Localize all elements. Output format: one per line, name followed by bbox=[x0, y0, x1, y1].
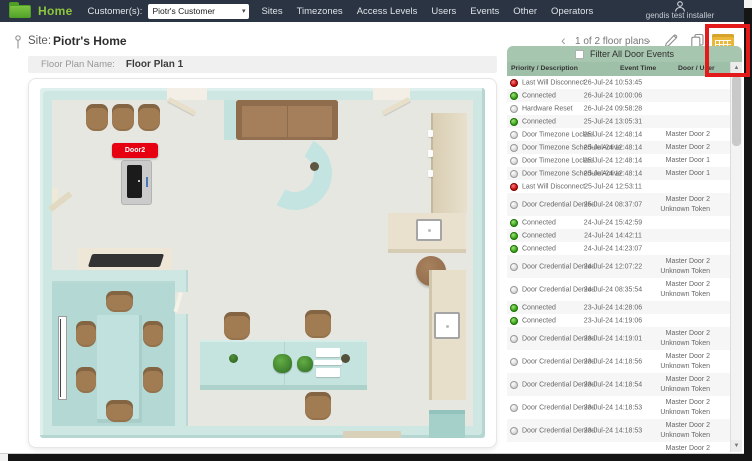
event-description: Connected bbox=[522, 92, 556, 99]
event-door-user: Master Door 2Unknown Token bbox=[660, 421, 710, 441]
home-logo-label[interactable]: Home bbox=[38, 4, 73, 18]
chair bbox=[106, 400, 133, 422]
nav-item-timezones[interactable]: Timezones bbox=[297, 6, 343, 17]
nav-item-access-levels[interactable]: Access Levels bbox=[357, 6, 418, 17]
event-description: Last Will Disconnect bbox=[522, 183, 585, 190]
event-time: 24-Jul-24 08:35:54 bbox=[581, 286, 645, 293]
event-row[interactable]: Connected25-Jul-24 13:05:31 bbox=[507, 115, 730, 128]
priority-dot-gray bbox=[510, 358, 518, 366]
priority-dot-gray bbox=[510, 105, 518, 113]
priority-dot-gray bbox=[510, 427, 518, 435]
event-time: 23-Jul-24 14:19:01 bbox=[581, 335, 645, 342]
event-row[interactable]: Door Credential Denied23-Jul-24 14:18:53… bbox=[507, 419, 730, 442]
scroll-down-icon[interactable]: ▼ bbox=[731, 440, 742, 452]
door-marker-icon[interactable] bbox=[121, 160, 152, 205]
chair bbox=[86, 104, 108, 131]
desk-item bbox=[341, 354, 350, 363]
event-row[interactable]: Door Credential Denied24-Jul-24 08:35:54… bbox=[507, 278, 730, 301]
priority-dot-gray bbox=[510, 404, 518, 412]
annotation-highlight bbox=[705, 24, 750, 77]
sofa bbox=[236, 100, 338, 140]
priority-dot-gray bbox=[510, 144, 518, 152]
event-row[interactable]: Last Will Disconnect25-Jul-24 12:53:11 bbox=[507, 180, 730, 193]
plant bbox=[273, 354, 292, 373]
sink bbox=[434, 312, 460, 339]
chair bbox=[305, 310, 331, 338]
filter-checkbox[interactable] bbox=[575, 50, 584, 59]
priority-dot-gray bbox=[510, 286, 518, 294]
customer-label: Customer(s): bbox=[88, 6, 143, 17]
column-priority-description: Priority / Description bbox=[511, 65, 578, 72]
priority-dot-green bbox=[510, 92, 518, 100]
plant bbox=[297, 356, 313, 372]
event-row[interactable]: Hardware Reset26-Jul-24 09:58:28 bbox=[507, 102, 730, 115]
event-row[interactable]: Door Credential Denied24-Jul-24 12:07:22… bbox=[507, 255, 730, 278]
event-row[interactable]: Door Credential Denied23-Jul-24 14:18:53… bbox=[507, 396, 730, 419]
event-time: 23-Jul-24 14:19:06 bbox=[581, 317, 645, 324]
event-time: 24-Jul-24 14:23:07 bbox=[581, 245, 645, 252]
event-time: 23-Jul-24 14:18:53 bbox=[581, 427, 645, 434]
event-description: Connected bbox=[522, 245, 556, 252]
chair bbox=[112, 104, 134, 131]
event-row[interactable]: Door Timezone Locked25-Jul-24 12:48:14Ma… bbox=[507, 154, 730, 167]
floorplan-name-value: Floor Plan 1 bbox=[126, 59, 183, 70]
event-row[interactable]: Connected24-Jul-24 15:42:59 bbox=[507, 216, 730, 229]
priority-dot-green bbox=[510, 232, 518, 240]
priority-dot-gray bbox=[510, 201, 518, 209]
door-events-panel: Filter All Door Events Priority / Descri… bbox=[507, 46, 742, 452]
event-time: 24-Jul-24 15:42:59 bbox=[581, 219, 645, 226]
event-door-user: Master Door 2 bbox=[666, 444, 710, 453]
event-row[interactable]: Connected23-Jul-24 14:28:06 bbox=[507, 301, 730, 314]
event-row[interactable]: Last Will Disconnect26-Jul-24 10:53:45 bbox=[507, 76, 730, 89]
events-scrollbar[interactable]: ▲ ▼ bbox=[730, 62, 742, 452]
floorplan-card: Door2 bbox=[28, 78, 497, 448]
event-time: 24-Jul-24 12:07:22 bbox=[581, 263, 645, 270]
screen: Home Customer(s): Piotr's Customer ▾ Sit… bbox=[0, 0, 752, 461]
event-row[interactable]: Connected23-Jul-24 14:19:06 bbox=[507, 314, 730, 327]
chair bbox=[224, 312, 250, 340]
event-door-user: Master Door 2Unknown Token bbox=[660, 329, 710, 349]
event-door-user: Master Door 2 bbox=[666, 143, 710, 153]
nav-item-users[interactable]: Users bbox=[431, 6, 456, 17]
wall-cabinet bbox=[431, 113, 467, 213]
floorplan-image[interactable]: Door2 bbox=[40, 88, 485, 438]
priority-dot-gray bbox=[510, 157, 518, 165]
event-row[interactable]: Connected24-Jul-24 14:42:11 bbox=[507, 229, 730, 242]
priority-dot-gray bbox=[510, 381, 518, 389]
scrollbar-thumb[interactable] bbox=[732, 76, 741, 146]
event-door-user: Master Door 2 bbox=[666, 130, 710, 140]
desk-item bbox=[229, 354, 238, 363]
event-description: Hardware Reset bbox=[522, 105, 573, 112]
reception-desk bbox=[254, 144, 342, 208]
papers bbox=[314, 360, 342, 365]
event-door-user: Master Door 2Unknown Token bbox=[660, 375, 710, 395]
event-door-user: Master Door 2Unknown Token bbox=[660, 257, 710, 277]
papers bbox=[316, 368, 340, 377]
app-window: Home Customer(s): Piotr's Customer ▾ Sit… bbox=[0, 0, 744, 454]
event-row[interactable]: Door Timezone Schedule Active25-Jul-24 1… bbox=[507, 141, 730, 154]
sink bbox=[416, 219, 442, 241]
storage-box bbox=[429, 410, 465, 438]
floorplan-name-label: Floor Plan Name: bbox=[41, 59, 115, 70]
customer-select-value: Piotr's Customer bbox=[152, 6, 215, 16]
site-label: Site: bbox=[28, 35, 51, 47]
event-description: Connected bbox=[522, 317, 556, 324]
top-navbar: Home Customer(s): Piotr's Customer ▾ Sit… bbox=[0, 0, 744, 22]
event-row[interactable]: Master Door 2 bbox=[507, 442, 730, 452]
desk-plant bbox=[310, 162, 319, 171]
event-time: 26-Jul-24 10:53:45 bbox=[581, 79, 645, 86]
desk-screen bbox=[88, 254, 164, 267]
event-time: 26-Jul-24 10:00:06 bbox=[581, 92, 645, 99]
doormat bbox=[343, 431, 401, 438]
priority-dot-gray bbox=[510, 263, 518, 271]
priority-dot-green bbox=[510, 304, 518, 312]
event-description: Connected bbox=[522, 304, 556, 311]
chair bbox=[143, 321, 163, 347]
priority-dot-green bbox=[510, 118, 518, 126]
priority-dot-green bbox=[510, 219, 518, 227]
event-door-user: Master Door 1 bbox=[666, 169, 710, 179]
event-door-user: Master Door 2Unknown Token bbox=[660, 398, 710, 418]
shelf-item bbox=[428, 150, 433, 157]
column-event-time: Event Time bbox=[620, 65, 656, 72]
door-marker-label[interactable]: Door2 bbox=[112, 143, 158, 158]
event-row[interactable]: Connected24-Jul-24 14:23:07 bbox=[507, 242, 730, 255]
chair bbox=[305, 392, 331, 420]
priority-dot-green bbox=[510, 245, 518, 253]
event-row[interactable]: Door Timezone Locked25-Jul-24 12:48:14Ma… bbox=[507, 128, 730, 141]
event-time: 24-Jul-24 14:42:11 bbox=[581, 232, 645, 239]
event-door-user: Master Door 2Unknown Token bbox=[660, 195, 710, 215]
event-description: Connected bbox=[522, 232, 556, 239]
event-door-user: Master Door 1 bbox=[666, 156, 710, 166]
event-door-user: Master Door 2Unknown Token bbox=[660, 352, 710, 372]
meeting-room-wall bbox=[52, 270, 188, 283]
event-row[interactable]: Door Credential Denied23-Jul-24 14:18:56… bbox=[507, 350, 730, 373]
nav-item-sites[interactable]: Sites bbox=[261, 6, 282, 17]
events-list: Last Will Disconnect26-Jul-24 10:53:45Co… bbox=[507, 76, 730, 452]
shelf-item bbox=[428, 130, 433, 137]
chair bbox=[76, 321, 96, 347]
home-logo-icon[interactable] bbox=[9, 5, 31, 18]
event-time: 25-Jul-24 12:48:14 bbox=[581, 144, 645, 151]
event-description: Last Will Disconnect bbox=[522, 79, 585, 86]
shelf-item bbox=[428, 170, 433, 177]
priority-dot-gray bbox=[510, 335, 518, 343]
event-row[interactable]: Door Credential Denied25-Jul-24 08:37:07… bbox=[507, 193, 730, 216]
chair bbox=[138, 104, 160, 131]
event-door-user: Master Door 2Unknown Token bbox=[660, 280, 710, 300]
chevron-down-icon: ▾ bbox=[242, 7, 246, 15]
event-description: Connected bbox=[522, 219, 556, 226]
chair bbox=[76, 367, 96, 393]
whiteboard bbox=[58, 316, 67, 400]
event-time: 23-Jul-24 14:18:53 bbox=[581, 404, 645, 411]
event-time: 23-Jul-24 14:28:06 bbox=[581, 304, 645, 311]
sofa-side-table bbox=[224, 100, 236, 140]
event-row[interactable]: Connected26-Jul-24 10:00:06 bbox=[507, 89, 730, 102]
event-row[interactable]: Door Credential Denied23-Jul-24 14:18:54… bbox=[507, 373, 730, 396]
event-time: 25-Jul-24 12:48:14 bbox=[581, 170, 645, 177]
event-time: 25-Jul-24 12:48:14 bbox=[581, 131, 645, 138]
event-time: 23-Jul-24 14:18:56 bbox=[581, 358, 645, 365]
user-name: gendis test installer bbox=[630, 11, 730, 20]
priority-dot-red bbox=[510, 79, 518, 87]
nav-menu: SitesTimezonesAccess LevelsUsersEventsOt… bbox=[261, 6, 593, 17]
meeting-room-wall bbox=[175, 270, 188, 292]
chair bbox=[143, 367, 163, 393]
floorplan-name-bar: Floor Plan Name: Floor Plan 1 bbox=[28, 56, 497, 73]
site-name: Piotr's Home bbox=[53, 34, 127, 48]
event-time: 25-Jul-24 08:37:07 bbox=[581, 201, 645, 208]
event-row[interactable]: Door Timezone Schedule Active25-Jul-24 1… bbox=[507, 167, 730, 180]
filter-label: Filter All Door Events bbox=[590, 49, 674, 59]
priority-dot-red bbox=[510, 183, 518, 191]
site-tree-icon[interactable] bbox=[14, 35, 22, 50]
event-description: Connected bbox=[522, 118, 556, 125]
priority-dot-gray bbox=[510, 170, 518, 178]
nav-item-events[interactable]: Events bbox=[470, 6, 499, 17]
event-time: 23-Jul-24 14:18:54 bbox=[581, 381, 645, 388]
nav-item-other[interactable]: Other bbox=[513, 6, 537, 17]
nav-item-operators[interactable]: Operators bbox=[551, 6, 593, 17]
user-menu[interactable]: gendis test installer bbox=[630, 1, 730, 20]
event-time: 25-Jul-24 12:53:11 bbox=[581, 183, 645, 190]
event-row[interactable]: Door Credential Denied23-Jul-24 14:19:01… bbox=[507, 327, 730, 350]
chair bbox=[106, 291, 133, 312]
event-time: 25-Jul-24 12:48:14 bbox=[581, 157, 645, 164]
priority-dot-green bbox=[510, 317, 518, 325]
meeting-room-wall bbox=[175, 314, 188, 426]
priority-dot-gray bbox=[510, 131, 518, 139]
event-time: 25-Jul-24 13:05:31 bbox=[581, 118, 645, 125]
customer-select[interactable]: Piotr's Customer ▾ bbox=[148, 4, 249, 19]
event-time: 26-Jul-24 09:58:28 bbox=[581, 105, 645, 112]
papers bbox=[316, 348, 340, 357]
